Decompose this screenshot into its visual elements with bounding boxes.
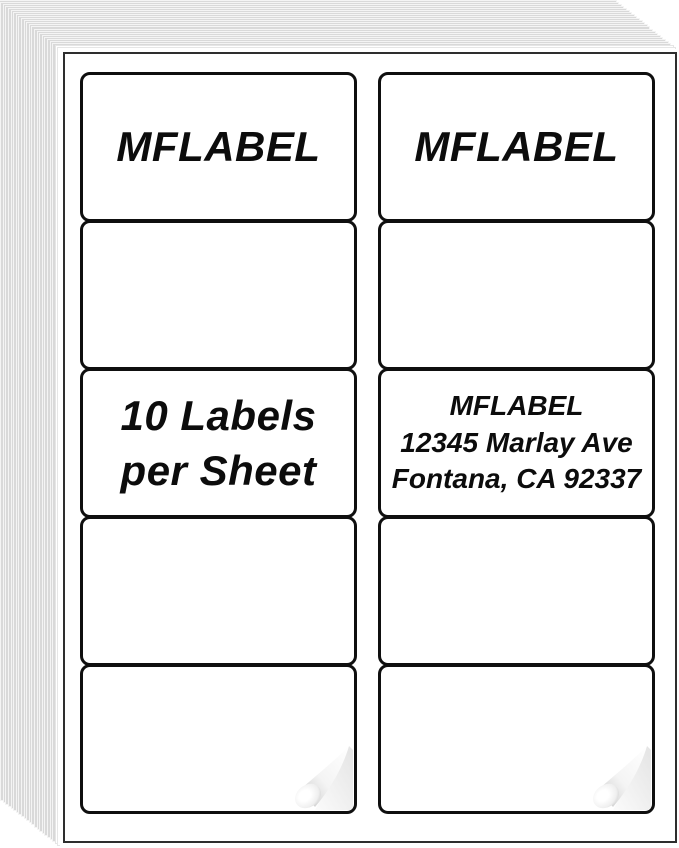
label-cell-right-1: MFLABEL bbox=[378, 72, 655, 222]
page-curl-icon bbox=[287, 744, 355, 812]
page-curl-icon bbox=[585, 744, 653, 812]
label-cell-left-2 bbox=[80, 220, 357, 370]
labels-count-line-1: 10 Labels bbox=[121, 388, 317, 443]
label-cell-right-2 bbox=[378, 220, 655, 370]
label-cell-right-5 bbox=[378, 664, 655, 814]
sample-address-name: MFLABEL bbox=[450, 388, 584, 424]
labels-count-line-2: per Sheet bbox=[121, 443, 317, 498]
front-sheet: MFLABEL 10 Labels per Sheet bbox=[60, 49, 679, 848]
label-cell-right-4 bbox=[378, 516, 655, 666]
label-cell-right-3: MFLABEL 12345 Marlay Ave Fontana, CA 923… bbox=[378, 368, 655, 518]
label-cell-left-1: MFLABEL bbox=[80, 72, 357, 222]
brand-text: MFLABEL bbox=[414, 124, 618, 170]
label-grid-left-column: MFLABEL 10 Labels per Sheet bbox=[80, 72, 357, 814]
brand-text: MFLABEL bbox=[116, 124, 320, 170]
label-cell-left-4 bbox=[80, 516, 357, 666]
label-cell-left-3: 10 Labels per Sheet bbox=[80, 368, 357, 518]
sample-address-city: Fontana, CA 92337 bbox=[392, 461, 641, 497]
label-cell-left-5 bbox=[80, 664, 357, 814]
sheet-outline: MFLABEL 10 Labels per Sheet bbox=[63, 52, 677, 843]
sample-address-street: 12345 Marlay Ave bbox=[400, 425, 632, 461]
label-grid-right-column: MFLABEL MFLABEL 12345 Marlay Ave Fontana… bbox=[378, 72, 655, 814]
label-sheet-product-image: MFLABEL 10 Labels per Sheet bbox=[0, 0, 679, 848]
